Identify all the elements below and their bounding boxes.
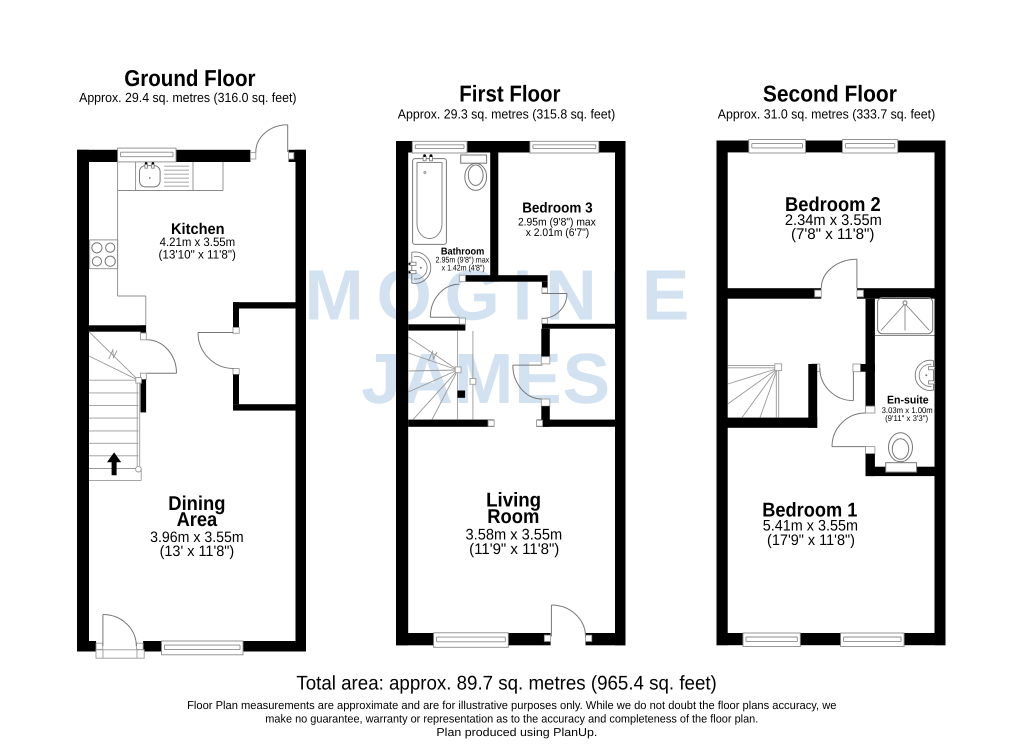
svg-text:(17'9" x 11'8"): (17'9" x 11'8"): [767, 532, 855, 549]
svg-text:(13' x 11'8"): (13' x 11'8"): [160, 543, 235, 560]
svg-text:Bedroom 3: Bedroom 3: [522, 200, 592, 216]
svg-text:Approx. 31.0 sq. metres (333.7: Approx. 31.0 sq. metres (333.7 sq. feet): [718, 107, 935, 122]
svg-text:Approx. 29.4 sq. metres (316.0: Approx. 29.4 sq. metres (316.0 sq. feet): [79, 90, 296, 105]
svg-text:x 1.42m (4'8"): x 1.42m (4'8"): [442, 263, 485, 272]
svg-text:Plan produced using PlanUp.: Plan produced using PlanUp.: [436, 727, 597, 739]
svg-text:Room: Room: [487, 506, 539, 528]
svg-text:Floor Plan measurements are ap: Floor Plan measurements are approximate …: [187, 700, 836, 712]
svg-text:Second Floor: Second Floor: [763, 80, 897, 106]
svg-text:make no guarantee, warranty or: make no guarantee, warranty or represent…: [265, 714, 758, 726]
svg-text:Total area: approx. 89.7 sq. m: Total area: approx. 89.7 sq. metres (965…: [296, 672, 716, 694]
svg-text:First Floor: First Floor: [459, 80, 560, 106]
svg-text:(13'10" x 11'8"): (13'10" x 11'8"): [159, 247, 236, 261]
svg-text:(11'9" x 11'8"): (11'9" x 11'8"): [469, 541, 559, 558]
svg-text:(9'11" x 3'3"): (9'11" x 3'3"): [885, 413, 928, 423]
svg-text:MOGINIE: MOGINIE: [304, 256, 702, 335]
svg-text:Ground Floor: Ground Floor: [124, 65, 255, 91]
svg-text:(7'8" x 11'8"): (7'8" x 11'8"): [791, 226, 875, 243]
svg-text:Approx. 29.3 sq. metres (315.8: Approx. 29.3 sq. metres (315.8 sq. feet): [398, 107, 615, 122]
svg-text:x 2.01m (6'7"): x 2.01m (6'7"): [526, 227, 589, 239]
